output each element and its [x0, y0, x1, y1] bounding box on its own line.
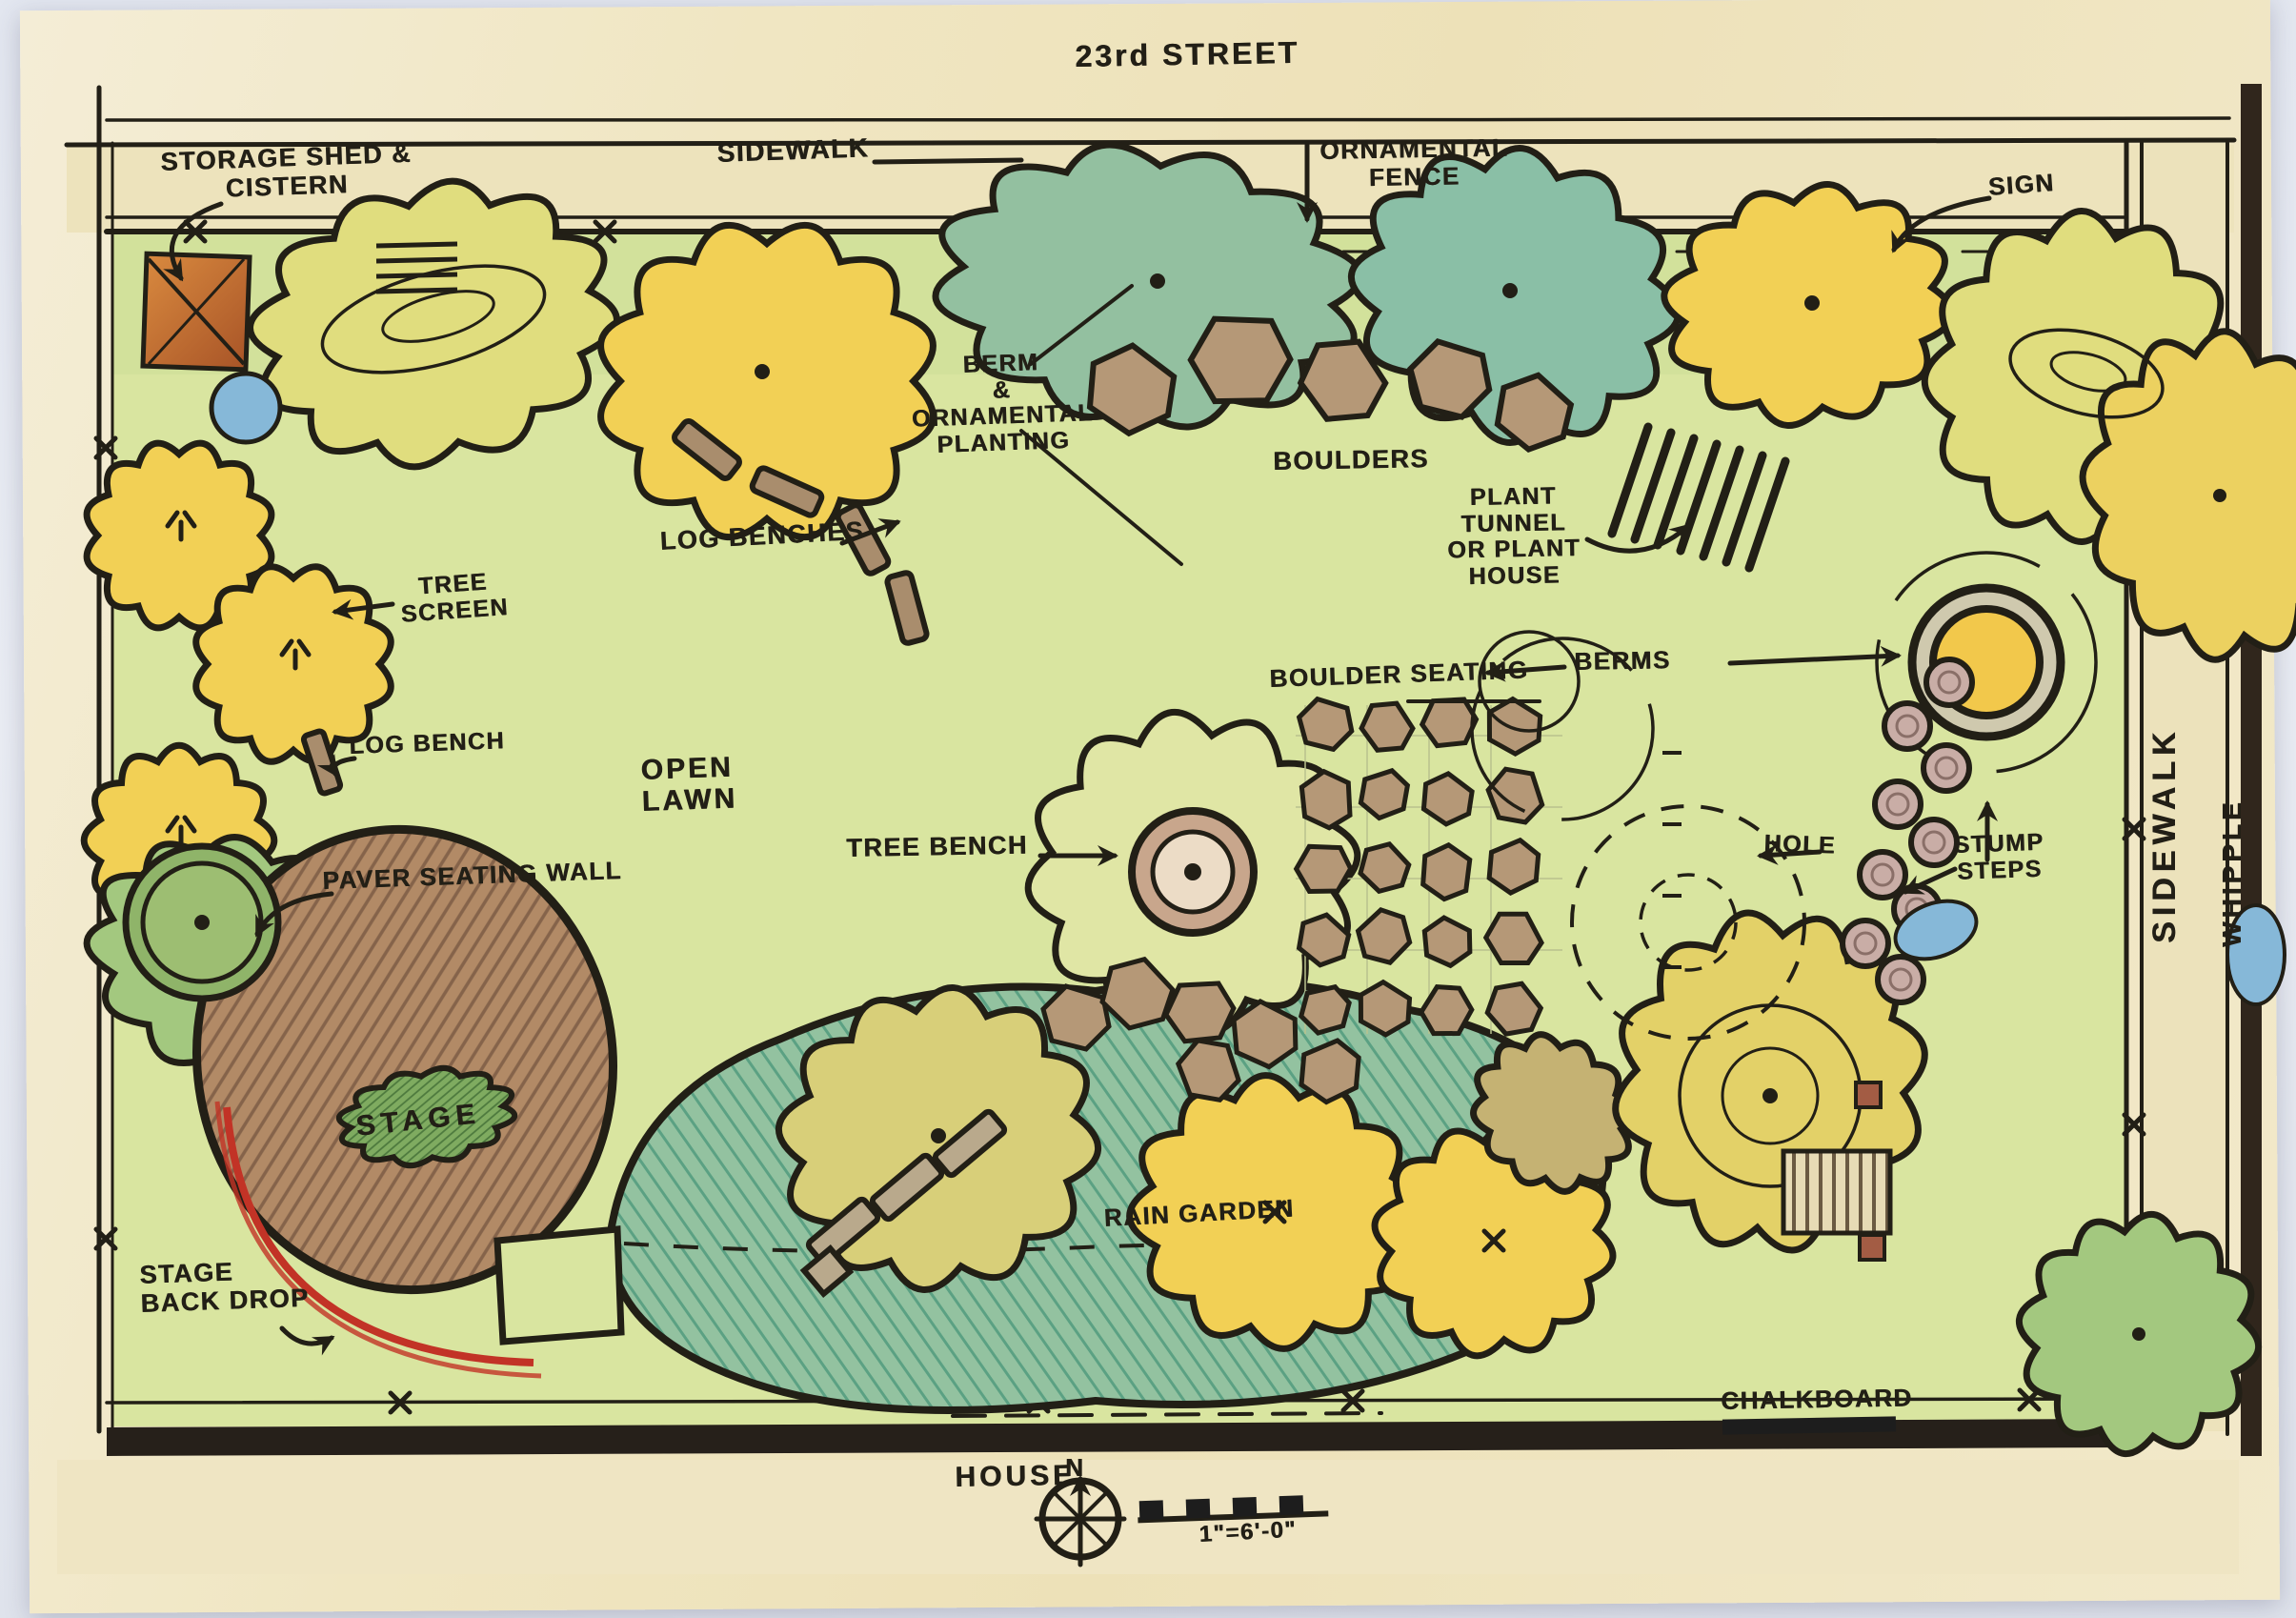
label-ornamental-fence: ORNAMENTAL FENCE	[1319, 134, 1509, 192]
label-hole: HOLE	[1763, 831, 1836, 860]
label-plant-tunnel: PLANT TUNNEL OR PLANT HOUSE	[1418, 483, 1610, 591]
label-boulders: BOULDERS	[1273, 445, 1429, 476]
label-chalkboard: CHALKBOARD	[1721, 1384, 1913, 1414]
street-curb-bar	[2241, 84, 2262, 1456]
label-house: HOUSE	[955, 1460, 1076, 1493]
label-tree-bench: TREE BENCH	[846, 832, 1028, 863]
cistern	[211, 374, 280, 442]
label-berm-planting: BERM & ORNAMENTAL PLANTING	[905, 348, 1099, 459]
label-berms: BERMS	[1574, 646, 1671, 675]
paver-seating-circle	[126, 846, 278, 999]
site-plan-drawing	[0, 0, 2296, 1618]
label-scale: 1"=6'-0"	[1198, 1518, 1298, 1548]
label-sign: SIGN	[1987, 169, 2055, 200]
label-street-whipple: WHIPPLE	[2218, 799, 2247, 947]
stage-notch	[497, 1229, 621, 1342]
photo-of-site-plan: 23rd STREET SIDEWALK ORNAMENTAL FENCE SI…	[0, 0, 2296, 1618]
label-tree-screen: TREE SCREEN	[398, 568, 510, 628]
label-open-lawn: OPEN LAWN	[640, 751, 738, 817]
chalkboard-bar	[1722, 1416, 1896, 1434]
label-storage-shed: STORAGE SHED & CISTERN	[160, 140, 413, 206]
label-stage-backdrop: STAGE BACK DROP	[139, 1256, 310, 1319]
label-north: N	[1065, 1454, 1084, 1482]
label-street: 23rd STREET	[1075, 36, 1299, 73]
label-stump-steps: STUMP STEPS	[1953, 830, 2045, 885]
label-sidewalk-right: SIDEWALK	[2147, 727, 2183, 943]
tree-bench-rings	[1132, 811, 1254, 933]
label-log-bench: LOG BENCH	[349, 728, 505, 759]
label-sidewalk-top: SIDEWALK	[716, 133, 870, 168]
